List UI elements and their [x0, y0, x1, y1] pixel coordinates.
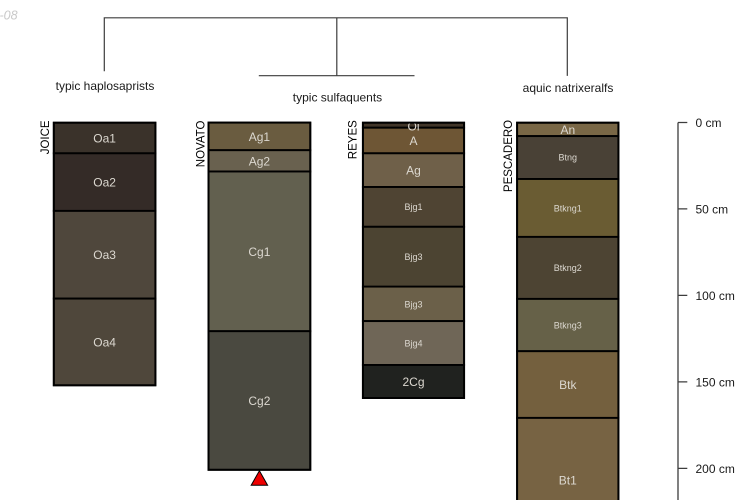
svg-text:Btk: Btk [559, 378, 577, 392]
svg-text:Oa1: Oa1 [93, 131, 116, 145]
svg-text:An: An [560, 123, 575, 137]
svg-text:typic haplosaprists: typic haplosaprists [56, 79, 155, 93]
svg-text:aquic natrixeralfs: aquic natrixeralfs [523, 81, 614, 95]
svg-text:Bjg3: Bjg3 [404, 299, 422, 309]
svg-text:NOVATO: NOVATO [196, 120, 208, 167]
svg-text:150 cm: 150 cm [696, 375, 735, 389]
svg-text:2Cg: 2Cg [402, 375, 424, 389]
svg-text:Oa3: Oa3 [93, 248, 116, 262]
svg-text:Oa2: Oa2 [93, 176, 116, 190]
svg-text:-08: -08 [0, 8, 18, 22]
svg-text:Cg2: Cg2 [248, 394, 270, 408]
svg-text:100 cm: 100 cm [696, 289, 735, 303]
svg-text:JOICE: JOICE [40, 120, 52, 154]
svg-text:200 cm: 200 cm [696, 462, 735, 476]
svg-text:Bt1: Bt1 [559, 473, 577, 487]
svg-text:Btkng2: Btkng2 [554, 263, 582, 273]
svg-text:Oa4: Oa4 [93, 335, 116, 349]
svg-text:typic sulfaquents: typic sulfaquents [293, 91, 382, 105]
svg-text:Btkng3: Btkng3 [554, 320, 582, 330]
svg-text:Ag2: Ag2 [249, 154, 271, 168]
svg-text:0 cm: 0 cm [696, 116, 722, 130]
svg-text:Ag: Ag [406, 164, 421, 178]
svg-text:A: A [409, 134, 417, 148]
svg-text:PESCADERO: PESCADERO [503, 120, 515, 192]
svg-text:REYES: REYES [348, 120, 360, 159]
svg-text:Bjg1: Bjg1 [404, 202, 422, 212]
svg-text:Btng: Btng [559, 153, 578, 163]
svg-text:Bjg3: Bjg3 [404, 252, 422, 262]
svg-text:Cg1: Cg1 [248, 245, 270, 259]
svg-text:Bjg4: Bjg4 [404, 338, 422, 348]
svg-text:Btkng1: Btkng1 [554, 203, 582, 213]
svg-text:Oi: Oi [408, 119, 420, 133]
svg-text:50 cm: 50 cm [696, 202, 729, 216]
svg-text:Ag1: Ag1 [249, 130, 271, 144]
